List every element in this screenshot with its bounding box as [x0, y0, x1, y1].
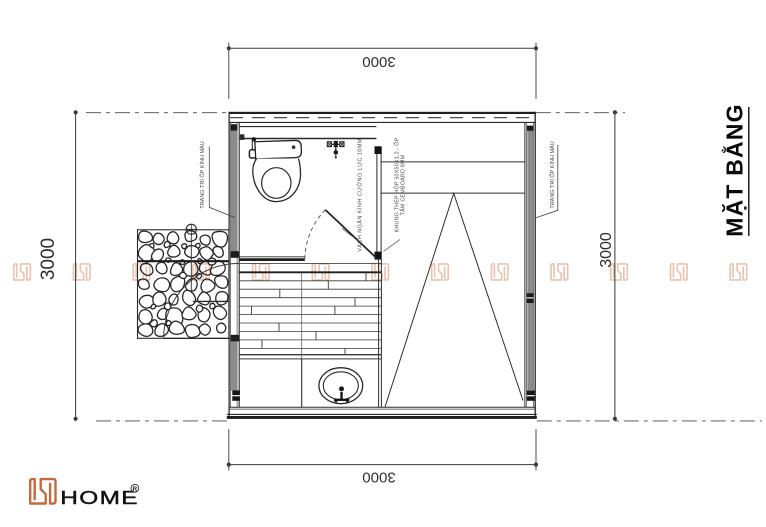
- svg-text:3000: 3000: [598, 232, 615, 268]
- svg-text:TẤM CEMBOARD 8MM: TẤM CEMBOARD 8MM: [399, 154, 406, 215]
- svg-text:TRANG TRÍ ỐP KÍNH MÀU: TRANG TRÍ ỐP KÍNH MÀU: [549, 141, 556, 208]
- svg-text:R: R: [133, 486, 138, 493]
- svg-text:3000: 3000: [362, 53, 395, 70]
- svg-text:TRANG TRÍ ỐP KÍNH MÀU: TRANG TRÍ ỐP KÍNH MÀU: [199, 141, 206, 208]
- svg-text:KHUNG THÉP HỘP 50X50X1.2 - ỐP: KHUNG THÉP HỘP 50X50X1.2 - ỐP: [393, 137, 400, 232]
- svg-text:3000: 3000: [362, 469, 395, 486]
- svg-text:HOME: HOME: [60, 487, 139, 508]
- svg-text:MẶT BẰNG: MẶT BẰNG: [721, 103, 748, 237]
- svg-text:3000: 3000: [38, 238, 59, 280]
- svg-text:VÁCH NGĂN KÍNH CƯỜNG LỰC 10MM: VÁCH NGĂN KÍNH CƯỜNG LỰC 10MM: [357, 138, 364, 252]
